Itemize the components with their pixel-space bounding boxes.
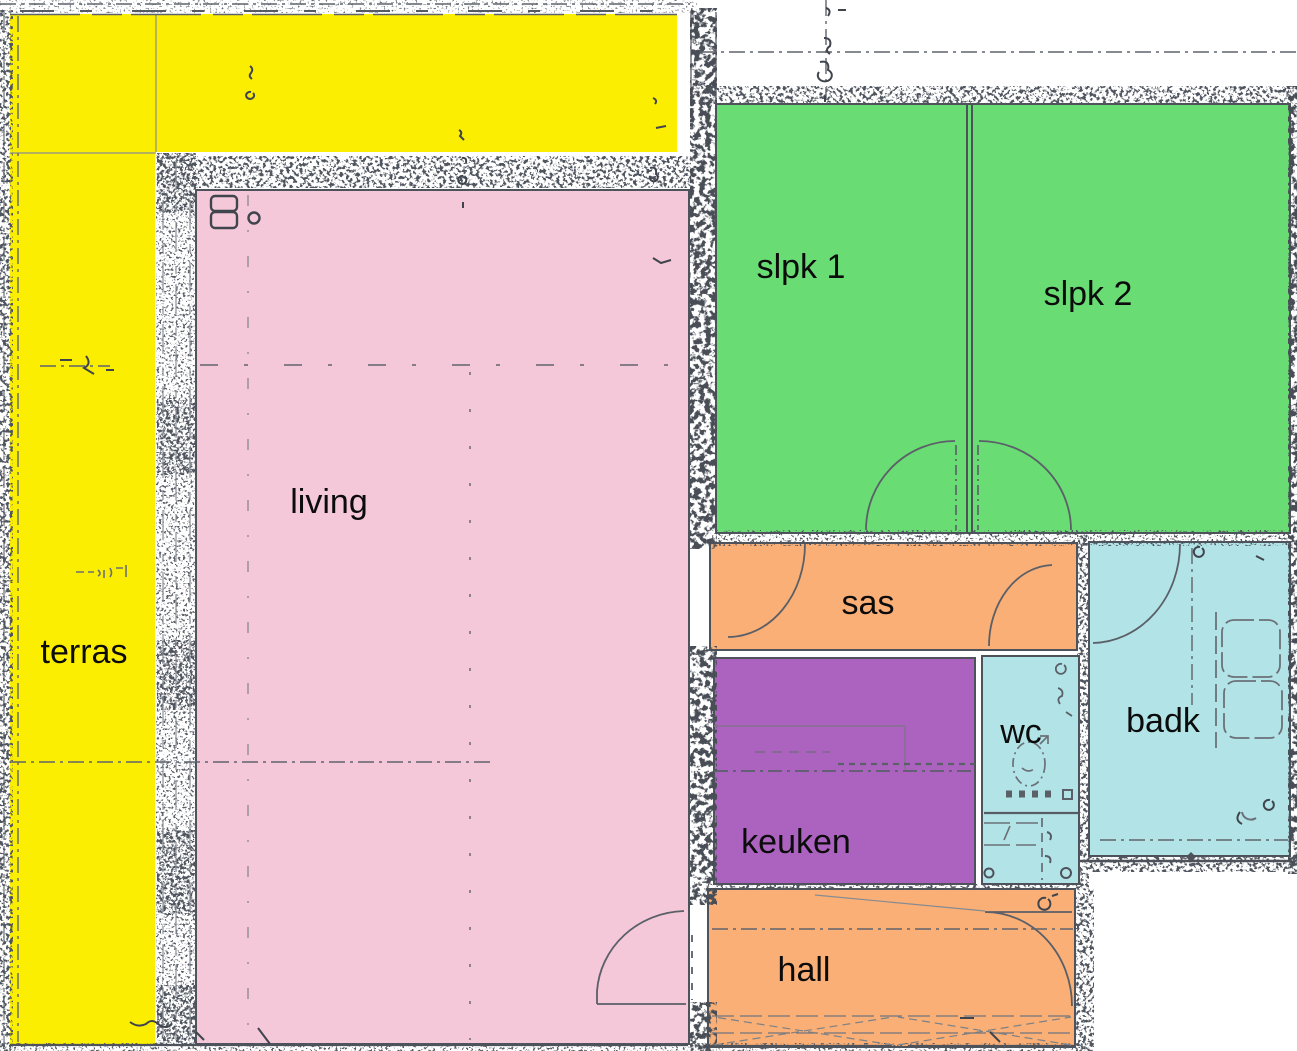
svg-text:badk: badk — [1126, 702, 1201, 740]
svg-text:hall: hall — [778, 951, 831, 989]
svg-text:terras: terras — [41, 633, 128, 671]
svg-text:wc: wc — [999, 713, 1042, 751]
svg-text:living: living — [290, 483, 367, 521]
svg-text:slpk 2: slpk 2 — [1044, 275, 1133, 313]
svg-text:sas: sas — [842, 584, 895, 622]
svg-text:slpk 1: slpk 1 — [757, 248, 846, 286]
svg-text:keuken: keuken — [741, 823, 851, 861]
